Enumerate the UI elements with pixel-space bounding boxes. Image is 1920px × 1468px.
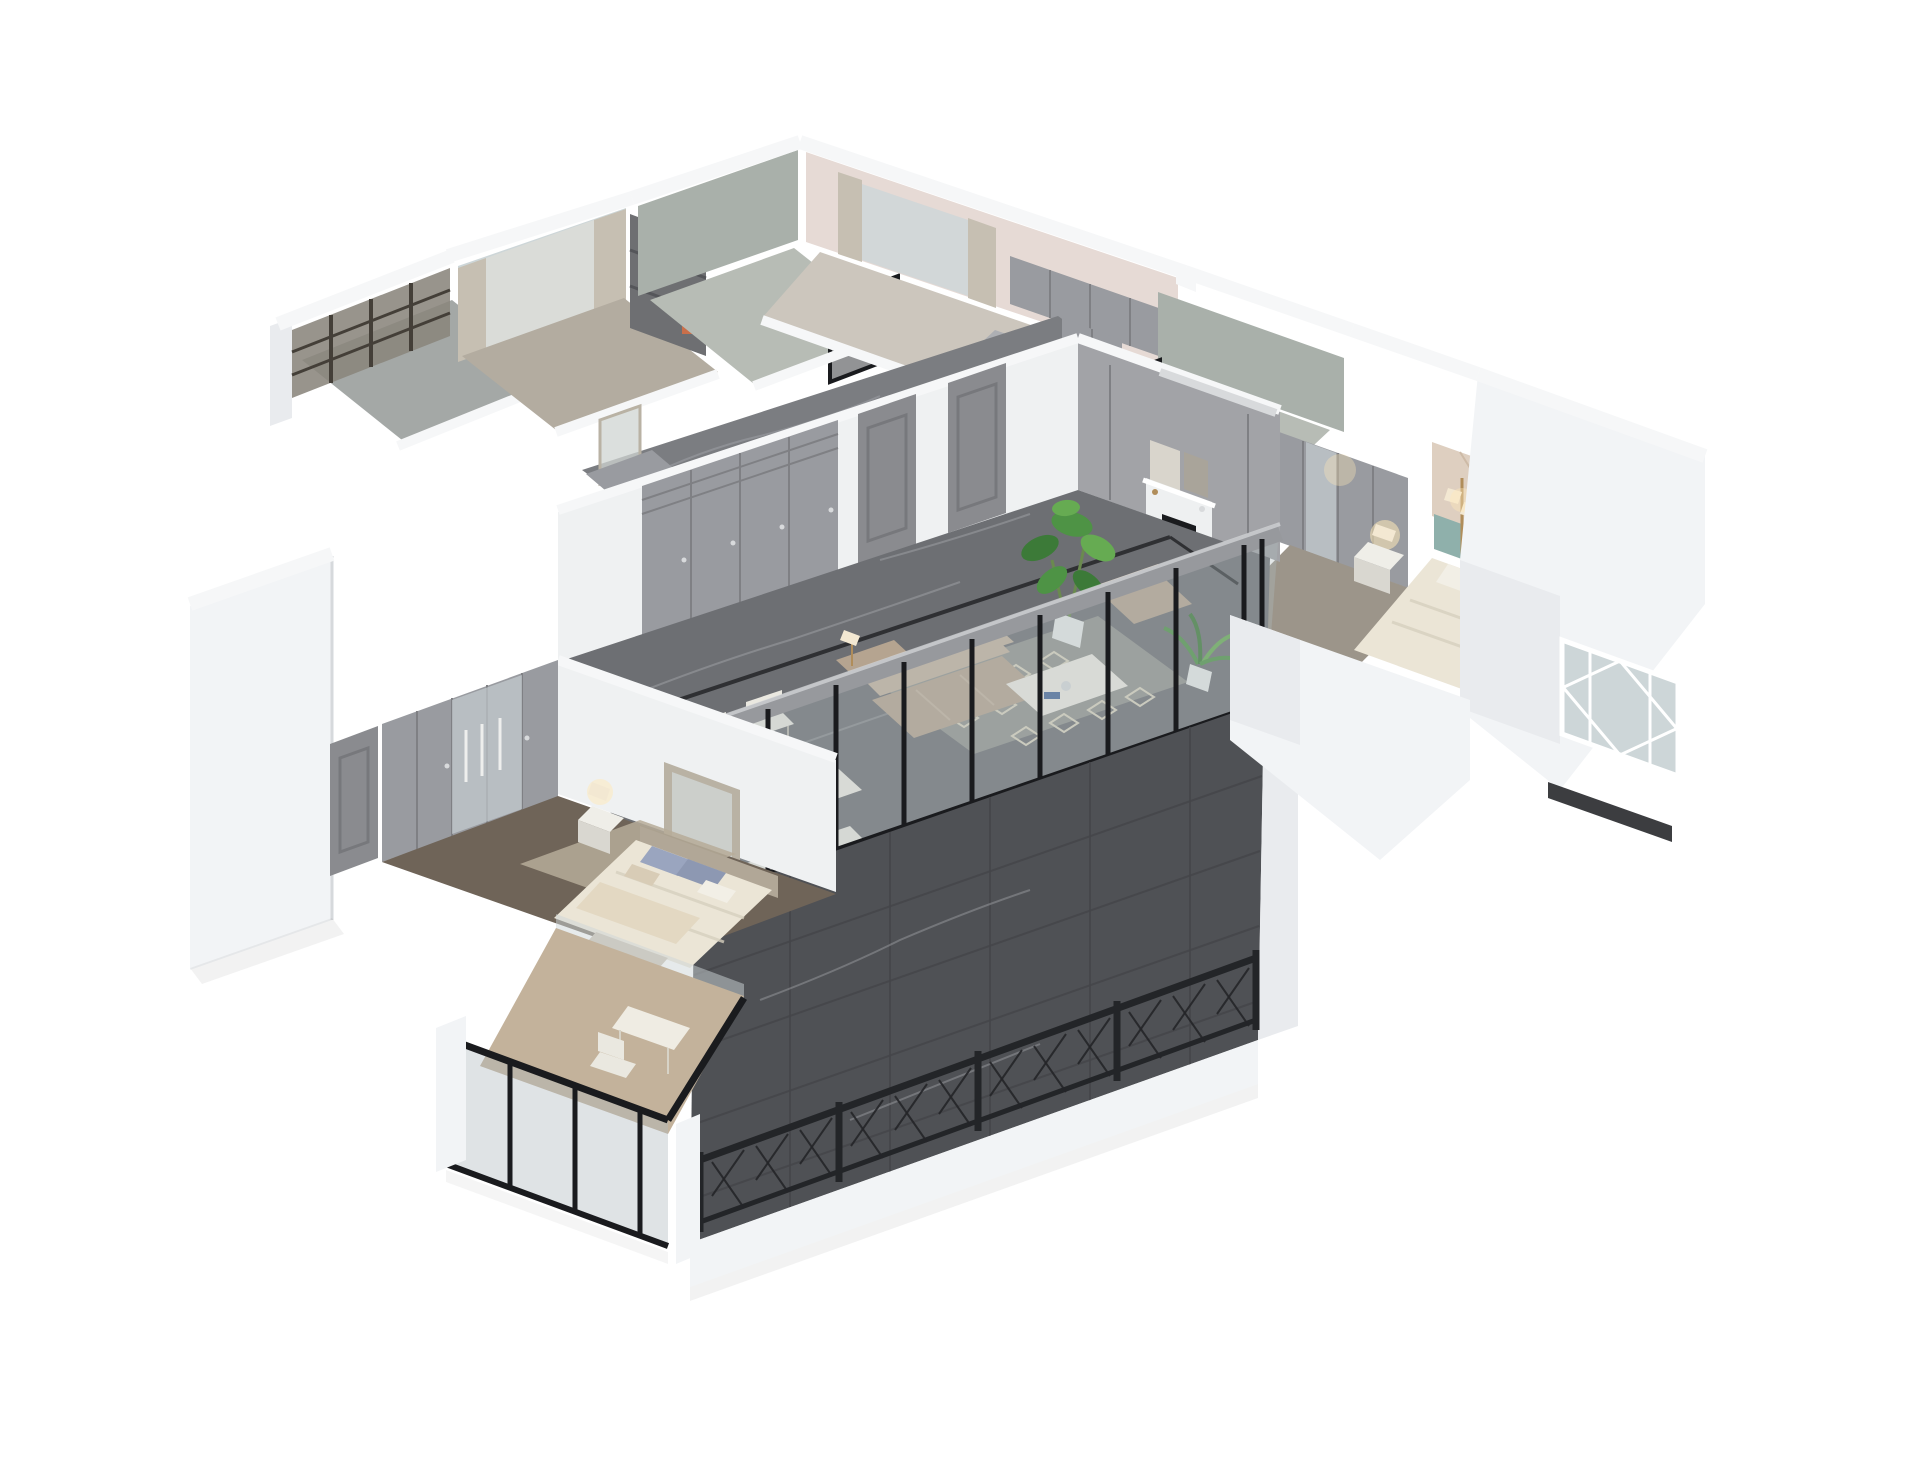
master-ne-roof-cap: [1352, 330, 1478, 374]
floorplan-render: [0, 0, 1920, 1468]
handle: [445, 764, 450, 769]
study-curtain-left: [458, 258, 486, 362]
handle: [780, 525, 785, 530]
wardrobe-glass-doors: [452, 675, 522, 834]
bay-window-wing: [1460, 374, 1705, 842]
balcony-west-wall: [270, 318, 292, 426]
handle: [731, 541, 736, 546]
west-exterior-wall: [190, 556, 332, 970]
bedroom2-door: [330, 726, 378, 876]
bay-dark-slot: [1548, 782, 1672, 842]
handle: [525, 736, 530, 741]
apartment-cutaway-scene: [0, 0, 1920, 1468]
mantel-decor: [1152, 489, 1158, 495]
terrace-left-post: [676, 1114, 700, 1264]
kitchen-curtain-left: [838, 172, 862, 262]
handle: [829, 508, 834, 513]
study-curtain-right: [594, 209, 626, 311]
warm-light: [1324, 454, 1356, 486]
balcony2-white-post: [436, 1016, 466, 1172]
kitchen-curtain-right: [968, 218, 996, 308]
mantel-decor: [1199, 506, 1205, 512]
handle: [682, 558, 687, 563]
